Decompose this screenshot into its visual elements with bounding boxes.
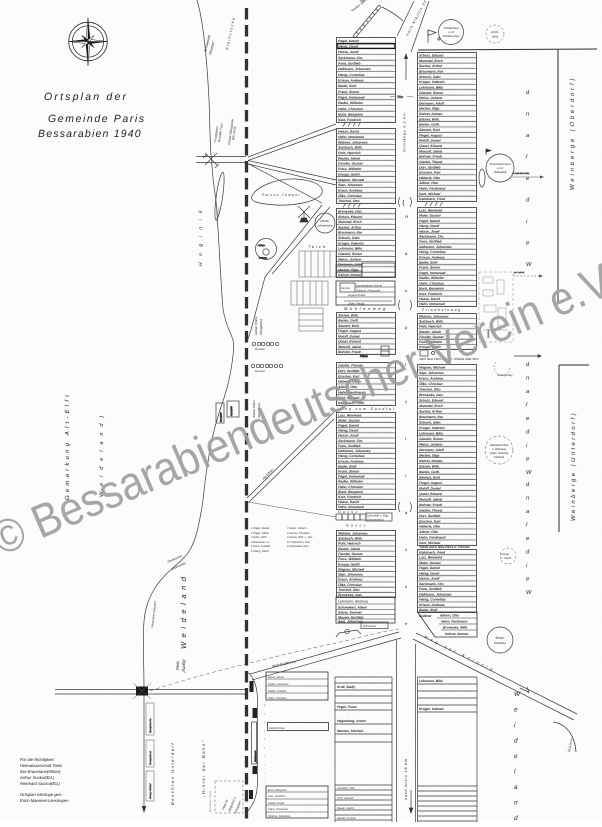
svg-text:Flegel, August: Flegel, August (419, 133, 443, 137)
svg-text:3 Hahn, Wilh.: 3 Hahn, Wilh. (251, 536, 267, 539)
svg-text:75m: 75m (397, 95, 404, 99)
svg-text:Frank, Simon: Frank, Simon (268, 676, 284, 679)
svg-text:d: d (514, 815, 518, 822)
svg-text:Lutz, Reinhold: Lutz, Reinhold (419, 556, 443, 560)
svg-text:Pagel, Immanuel: Pagel, Immanuel (268, 683, 289, 686)
svg-text:Lehmann, Béla: Lehmann, Béla (419, 679, 443, 683)
svg-text:Weinberge (Oberdorf): Weinberge (Oberdorf) (569, 76, 576, 190)
svg-text:Krüger, Valmatt: Krüger, Valmatt (419, 707, 444, 711)
svg-text:6 Hänig, David: 6 Hänig, David (251, 550, 269, 553)
svg-text:n: n (526, 496, 529, 502)
svg-text:(Lehmgrube): (Lehmgrube) (497, 374, 512, 377)
svg-text:Rathaus, Feuerwehr: Rathaus, Feuerwehr (356, 290, 380, 293)
svg-text:Lehm-: Lehm- (491, 30, 500, 34)
svg-text:Suckut, Arthur: Suckut, Arthur (419, 64, 443, 68)
svg-text:Künkele: Künkele (494, 455, 505, 459)
svg-text:Sulzbach, Wilh.: Sulzbach, Wilh. (338, 146, 363, 150)
svg-text:Falkschinnes: Falkschinnes (269, 727, 285, 730)
svg-text:Weinberge (Unterdorf): Weinberge (Unterdorf) (570, 411, 577, 521)
svg-text:Lehmgr.: Lehmgr. (500, 553, 510, 556)
svg-text:n: n (526, 112, 529, 118)
svg-text:zur Hutung: zur Hutung (513, 271, 525, 274)
svg-text:Gässler, Simon: Gässler, Simon (338, 252, 362, 256)
svg-text:Flegel, August: Flegel, August (419, 481, 443, 485)
svg-text:Gärten (früher: Gärten (früher (254, 315, 258, 335)
svg-text:Fässler, Gustav: Fässler, Gustav (337, 817, 356, 820)
svg-text:Haase, David: Haase, David (268, 802, 285, 805)
svg-text:Brunnen: Brunnen (259, 257, 268, 260)
svg-text:s: s (264, 764, 265, 767)
svg-text:Gässler, Simon: Gässler, Simon (419, 91, 443, 95)
svg-text:Kehrer, Imman.: Kehrer, Imman. (419, 459, 443, 463)
svg-text:Sulzbach, Wilh.: Sulzbach, Wilh. (337, 787, 356, 790)
svg-text:Gemeindeamt Schule: Gemeindeamt Schule (356, 285, 382, 288)
svg-text:Arthur Suckut(Ed.): Arthur Suckut(Ed.) (19, 775, 55, 780)
svg-text:„Rüdtig“: „Rüdtig“ (181, 658, 186, 674)
svg-text:Friedhofsweg: Friedhofsweg (422, 308, 462, 312)
svg-text:2 Pagel, Jakob: 2 Pagel, Jakob (250, 532, 269, 535)
svg-text:Kreuzgarten M.: Kreuzgarten M. (149, 750, 152, 765)
svg-text:10 Sackmann, Imm.: 10 Sackmann, Imm. (287, 541, 311, 544)
svg-text:Dallmann, Johannes: Dallmann, Johannes (419, 245, 452, 249)
svg-text:Heimatausschuß Paris: Heimatausschuß Paris (20, 763, 63, 768)
svg-text:Katz, Friedrich: Katz, Friedrich (268, 795, 286, 798)
svg-text:berg: berg (492, 35, 498, 39)
svg-text:u n d: u n d (448, 31, 454, 34)
svg-text:Lehmann, Béla: Lehmann, Béla (419, 432, 443, 436)
svg-text:Ortsplan der: Ortsplan der (44, 91, 128, 103)
svg-text:Kyselgarten Str.: Kyselgarten Str. (149, 718, 152, 733)
svg-text:n: n (526, 376, 529, 382)
svg-text:d: d (514, 738, 518, 745)
svg-text:Brunnen: Brunnen (255, 370, 266, 373)
svg-text:5 Fano, Gottlieb: 5 Fano, Gottlieb (251, 545, 271, 548)
svg-text:Broneske, Dan.: Broneske, Dan. (419, 393, 443, 397)
svg-text:Schäferhaus: Schäferhaus (443, 27, 459, 30)
svg-text:Hoginik: Hoginik (198, 204, 204, 266)
svg-text:Salzer, Samuel: Salzer, Samuel (338, 611, 361, 615)
svg-text:Lehmann, Andreas: Lehmann, Andreas (338, 600, 368, 604)
svg-text:schwemme: schwemme (317, 224, 333, 228)
svg-text:Mühlenweg: Mühlenweg (344, 306, 388, 311)
svg-text:Buck, Benjamin: Buck, Benjamin (268, 789, 287, 792)
svg-text:Reinhard Suckut(Ed.): Reinhard Suckut(Ed.) (20, 781, 61, 786)
svg-text:Bessarabien 1940: Bessarabien 1940 (38, 128, 142, 140)
svg-text:1 Pagel, Daniel: 1 Pagel, Daniel (251, 527, 270, 530)
svg-text:Lutz, Reinhold: Lutz, Reinhold (419, 208, 443, 212)
svg-text:Radke, Wilhelm: Radke, Wilhelm (268, 690, 288, 693)
svg-text:Pohl, Heinrich: Pohl, Heinrich (337, 797, 354, 800)
svg-text:Gollmer: Gollmer (419, 614, 432, 618)
svg-text:W: W (526, 590, 532, 596)
svg-text:Braumann, Ilse: Braumann, Ilse (419, 415, 443, 419)
svg-text:Kreuzg. Friedhof: Kreuzg. Friedhof (149, 783, 152, 799)
svg-text:Suckut, Arthur: Suckut, Arthur (419, 410, 443, 414)
svg-text:Dallmann, Johannes: Dallmann, Johannes (338, 67, 371, 71)
svg-text:Brunnen: Brunnen (255, 348, 266, 351)
svg-text:brunnen: brunnen (494, 641, 506, 645)
svg-text:Quast, Eduard: Quast, Eduard (419, 492, 443, 496)
svg-text:Stationsgeb.: Stationsgeb. (254, 750, 257, 762)
svg-text:Kison, Andreas: Kison, Andreas (338, 189, 363, 193)
svg-text:Viehweide: Viehweide (494, 170, 507, 174)
svg-text:Kehrer, Imman.: Kehrer, Imman. (445, 632, 469, 636)
svg-text:Beschtan Paris: Beschtan Paris (209, 790, 212, 812)
svg-text:Ortsplan niterloge gez.:: Ortsplan niterloge gez.: (20, 792, 63, 797)
svg-text:7 Adam, Johann: 7 Adam, Johann (287, 527, 307, 530)
svg-text:Weideland: Weideland (179, 572, 188, 649)
svg-text:Erich Mammel-Lienzingen: Erich Mammel-Lienzingen (20, 798, 69, 803)
svg-text:Hahn, Christian: Hahn, Christian (268, 697, 287, 700)
svg-text:4 Braumann, G.: 4 Braumann, G. (251, 541, 270, 544)
svg-text:Rauter, Jakob: Rauter, Jakob (337, 807, 354, 810)
svg-text:Gäckle, Theod.: Gäckle, Theod. (419, 160, 443, 164)
svg-text:Ilse Braumann(Allner): Ilse Braumann(Allner) (20, 769, 61, 774)
svg-text:Gemeinde Paris: Gemeinde Paris (48, 113, 146, 125)
svg-text:Braumann, Ilse: Braumann, Ilse (419, 70, 443, 74)
svg-text:Ortslänge 4,2 km: Ortslänge 4,2 km (403, 113, 407, 152)
svg-text:Broneske, Wilh.: Broneske, Wilh. (443, 626, 468, 630)
svg-text:Gässler, Simon: Gässler, Simon (419, 437, 443, 441)
svg-text:Quast, Eduard: Quast, Eduard (338, 340, 362, 344)
svg-text:Schafbrunnen: Schafbrunnen (443, 35, 460, 38)
svg-text:Schweikert, Albert: Schweikert, Albert (338, 606, 368, 610)
svg-text:Hagenberg, Anton: Hagenberg, Anton (337, 719, 366, 723)
svg-text:Palzen-: Palzen- (258, 244, 265, 247)
svg-text:Broneske, Dan.: Broneske, Dan. (338, 210, 362, 214)
svg-text:W: W (526, 262, 532, 268)
svg-text:Quast, Eduard: Quast, Eduard (419, 144, 443, 148)
svg-text:Gäckle, Theod.: Gäckle, Theod. (419, 508, 443, 512)
svg-text:Dallmann, Johannes: Dallmann, Johannes (419, 593, 452, 597)
svg-text:Beschtan Unterdorf: Beschtan Unterdorf (170, 742, 175, 805)
svg-text:Nannes, Michael: Nannes, Michael (337, 729, 363, 733)
svg-text:nach Arzis 18 km: nach Arzis 18 km (404, 758, 408, 800)
svg-text:Hahn, Immanuel: Hahn, Immanuel (268, 808, 288, 811)
svg-text:Kehrer, Imman.: Kehrer, Imman. (419, 112, 443, 116)
svg-text:Platz: Platz (175, 661, 180, 670)
svg-text:Genossensch.: Genossensch. (367, 519, 384, 522)
svg-text:Kehrer, Imman.: Kehrer, Imman. (338, 273, 362, 277)
svg-text:Schaf-: Schaf- (495, 636, 504, 640)
svg-text:a: a (514, 784, 518, 791)
svg-text:Dallmann, Johannes: Dallmann, Johannes (338, 449, 371, 453)
svg-text:Suckut, Arthur: Suckut, Arthur (338, 225, 362, 229)
svg-text:Palzen-Tümpel: Palzen-Tümpel (262, 193, 300, 197)
svg-text:Kräll, Sadly: Kräll, Sadly (337, 685, 355, 689)
svg-text:W: W (514, 691, 521, 698)
svg-text:e: e (514, 753, 518, 760)
svg-text:Erdmannia: Erdmannia (363, 625, 377, 628)
svg-text:Fegel, Franz: Fegel, Franz (337, 705, 357, 709)
svg-text:Lehmann, Béla: Lehmann, Béla (338, 247, 362, 251)
svg-text:Pferde-: Pferde- (320, 219, 330, 223)
svg-text:Sept, Johannes: Sept, Johannes (338, 620, 363, 624)
svg-text:Kanzlei: Kanzlei (341, 287, 350, 290)
svg-text:11 Broneske, Dan.: 11 Broneske, Dan. (287, 545, 309, 548)
svg-text:n: n (514, 800, 518, 807)
svg-text:Obstgärten): Obstgärten) (259, 319, 263, 335)
svg-text:9 Harter, Wilh. u. Ww.: 9 Harter, Wilh. u. Ww. (287, 536, 313, 539)
svg-text:Schmiede u. Wag.: Schmiede u. Wag. (367, 515, 389, 518)
svg-text:Für die Richtigkeit:: Für die Richtigkeit: (20, 757, 55, 762)
svg-text:Treidl nach Neu-Paris u. Ferns: Treidl nach Neu-Paris u. Fernstr. (419, 545, 470, 549)
svg-text:Hahn, Ferdinand: Hahn, Ferdinand (441, 620, 468, 624)
svg-text:Widmer, Johannes: Widmer, Johannes (268, 815, 291, 818)
svg-text:8 Schulz, Christina: 8 Schulz, Christina (287, 532, 310, 535)
svg-text:Gasse: Gasse (338, 510, 360, 514)
svg-text:Flegel, August: Flegel, August (338, 329, 362, 333)
svg-text:Sulzbach, Wilh.: Sulzbach, Wilh. (338, 537, 363, 541)
svg-text:Gasse: Gasse (346, 524, 368, 528)
svg-text:Allmer, Otto: Allmer, Otto (439, 614, 459, 618)
svg-text:Braumann, Ilse: Braumann, Ilse (338, 231, 362, 235)
svg-text:„Hinter der Bahn“: „Hinter der Bahn“ (201, 739, 206, 798)
svg-text:Kison, Andreas: Kison, Andreas (338, 578, 363, 582)
svg-text:W: W (526, 470, 532, 476)
svg-text:Lehmann, Béla: Lehmann, Béla (419, 86, 443, 90)
svg-text:Angerschmied: Angerschmied (347, 294, 366, 297)
svg-text:e: e (514, 707, 518, 714)
svg-text:u. Teichl.: u. Teichl. (501, 557, 512, 560)
svg-text:n. Paris-Born 5 km: n. Paris-Born 5 km (512, 172, 529, 175)
svg-text:Teich: Teich (308, 245, 327, 249)
